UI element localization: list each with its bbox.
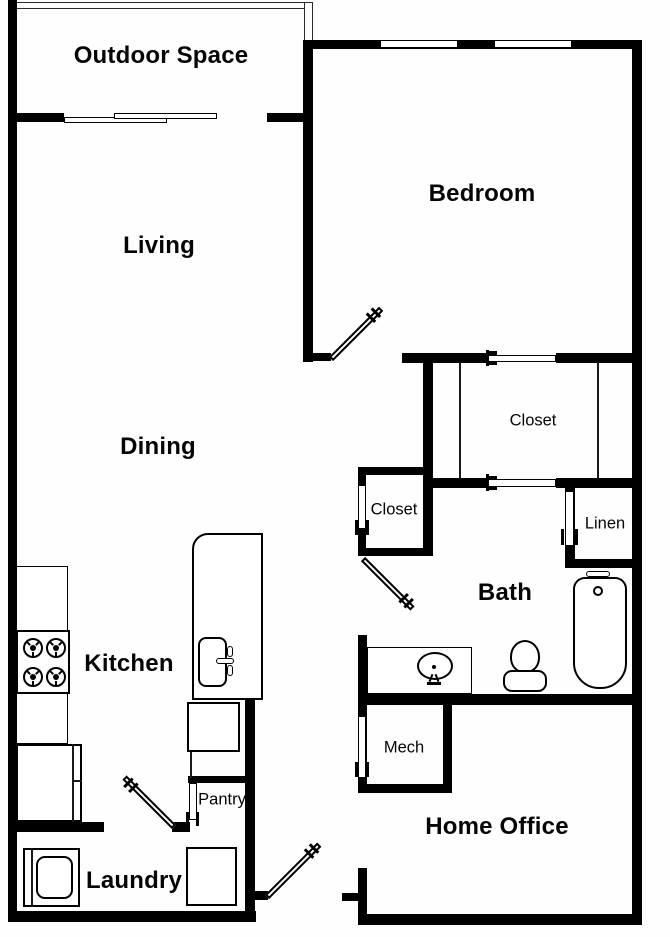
walkin-closet-slider-bottom [488,479,556,487]
door-hinge-icon [403,598,414,609]
sink-drain-icon [432,665,436,669]
room-label-bedroom: Bedroom [429,180,536,208]
wall-mech-bottom [358,784,452,793]
range-cooktop [16,630,70,694]
door-jamb-icon [355,762,358,777]
room-label-home-office: Home Office [425,813,569,841]
wall-bath-bottom [358,694,642,705]
room-label-dining: Dining [120,433,196,461]
slider-bracket-icon [489,361,497,365]
dishwasher [187,702,240,752]
wall-bath-left [358,635,367,695]
wall-homeoffice-stub [342,893,358,901]
door-jamb-icon [186,812,189,826]
bath-door-leaf [361,557,415,611]
island-faucet-handle-icon [227,665,233,676]
burner-icons [18,632,68,692]
room-label-outdoor-space: Outdoor Space [74,42,249,70]
laundry-door-leaf [122,775,176,829]
dryer [186,847,237,906]
door-jamb-icon [355,520,358,535]
washer-drum [36,856,73,899]
tub-drain-icon [593,586,603,596]
linen-door [565,491,574,546]
door-jamb-icon [575,529,578,545]
wall-laundry-top [8,822,104,832]
room-label-linen: Linen [585,515,625,534]
wall-bedroom-bottom-right [556,353,642,363]
walkin-closet-slider-top [488,355,556,362]
slider-bracket-icon [489,486,497,490]
island-faucet-handle-icon [227,646,233,657]
bedroom-window-2 [494,40,572,48]
wall-bedroom-bottom-left [402,353,488,363]
room-label-walkin-closet: Closet [510,412,557,431]
door-jamb-icon [366,520,369,535]
door-jamb-icon [196,812,199,826]
refrigerator-door-line [72,744,74,822]
room-label-kitchen: Kitchen [84,650,173,678]
cabinet-edge-line [190,752,192,778]
slider-bracket-icon [489,351,497,355]
room-label-laundry: Laundry [86,867,182,895]
tub-faucet-icon [586,571,610,577]
door-jamb-icon [561,529,564,545]
wall-closet-bottom-left [433,478,489,488]
wall-tub-top [565,559,642,568]
door-hinge-icon [128,782,139,793]
patio-slider-panel-right [114,113,217,119]
slider-bracket-icon [489,476,497,480]
bedroom-door-leaf [329,307,383,361]
door-jamb-icon [366,762,369,777]
wall-laundry-bottom [8,911,256,922]
wall-pantry-top [188,776,247,783]
entry-door-leaf [265,843,322,900]
floor-plan: Outdoor Space Living Bedroom Dining Clos… [0,0,670,937]
bedroom-window-1 [380,40,458,48]
closet-rod-line-right [597,362,599,479]
balcony-railing-top [13,2,313,9]
vanity-faucet-icon [427,682,441,685]
room-label-bath: Bath [478,579,532,607]
closet-rod-line-left [459,362,461,479]
mech-door [358,716,366,778]
room-label-living: Living [123,232,195,260]
washer-panel-line [31,848,33,907]
room-label-pantry: Pantry [198,791,246,810]
wall-hallcloset-top [358,467,423,475]
toilet-bowl [510,640,540,673]
wall-homeoffice-left [358,868,367,925]
wall-outdoor-living-left [8,113,64,122]
wall-laundry-right [245,698,255,922]
wall-closet-divider [423,353,433,556]
wall-bedroom-top [303,40,642,49]
wall-homeoffice-bottom [358,914,642,925]
island-faucet-spout-icon [216,658,234,664]
toilet-tank [503,670,547,692]
refrigerator-divider-line [72,780,82,782]
wall-hallcloset-bottom [358,548,430,556]
room-label-mech: Mech [384,739,424,758]
room-label-hall-closet: Closet [371,501,418,520]
wall-mech-right [443,705,452,793]
balcony-railing-right [304,2,313,41]
wall-living-bedroom-divider [303,40,313,362]
hall-closet-door [358,485,366,529]
